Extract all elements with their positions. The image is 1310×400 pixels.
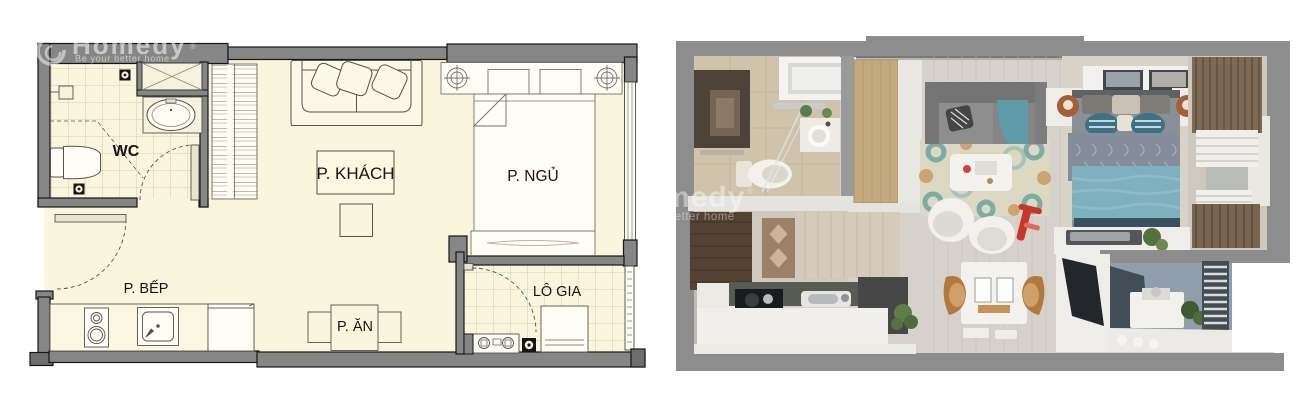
svg-text:P. BẾP: P. BẾP xyxy=(124,280,169,297)
svg-text:WC: WC xyxy=(113,143,140,160)
svg-text:®: ® xyxy=(190,42,196,51)
svg-text:®: ® xyxy=(747,186,754,196)
svg-text:Be your better home: Be your better home xyxy=(75,54,170,64)
svg-text:P. ĂN: P. ĂN xyxy=(337,318,373,335)
svg-text:LÔ GIA: LÔ GIA xyxy=(533,283,582,300)
svg-text:P. KHÁCH: P. KHÁCH xyxy=(316,164,394,183)
svg-text:P. NGỦ: P. NGỦ xyxy=(507,167,558,185)
